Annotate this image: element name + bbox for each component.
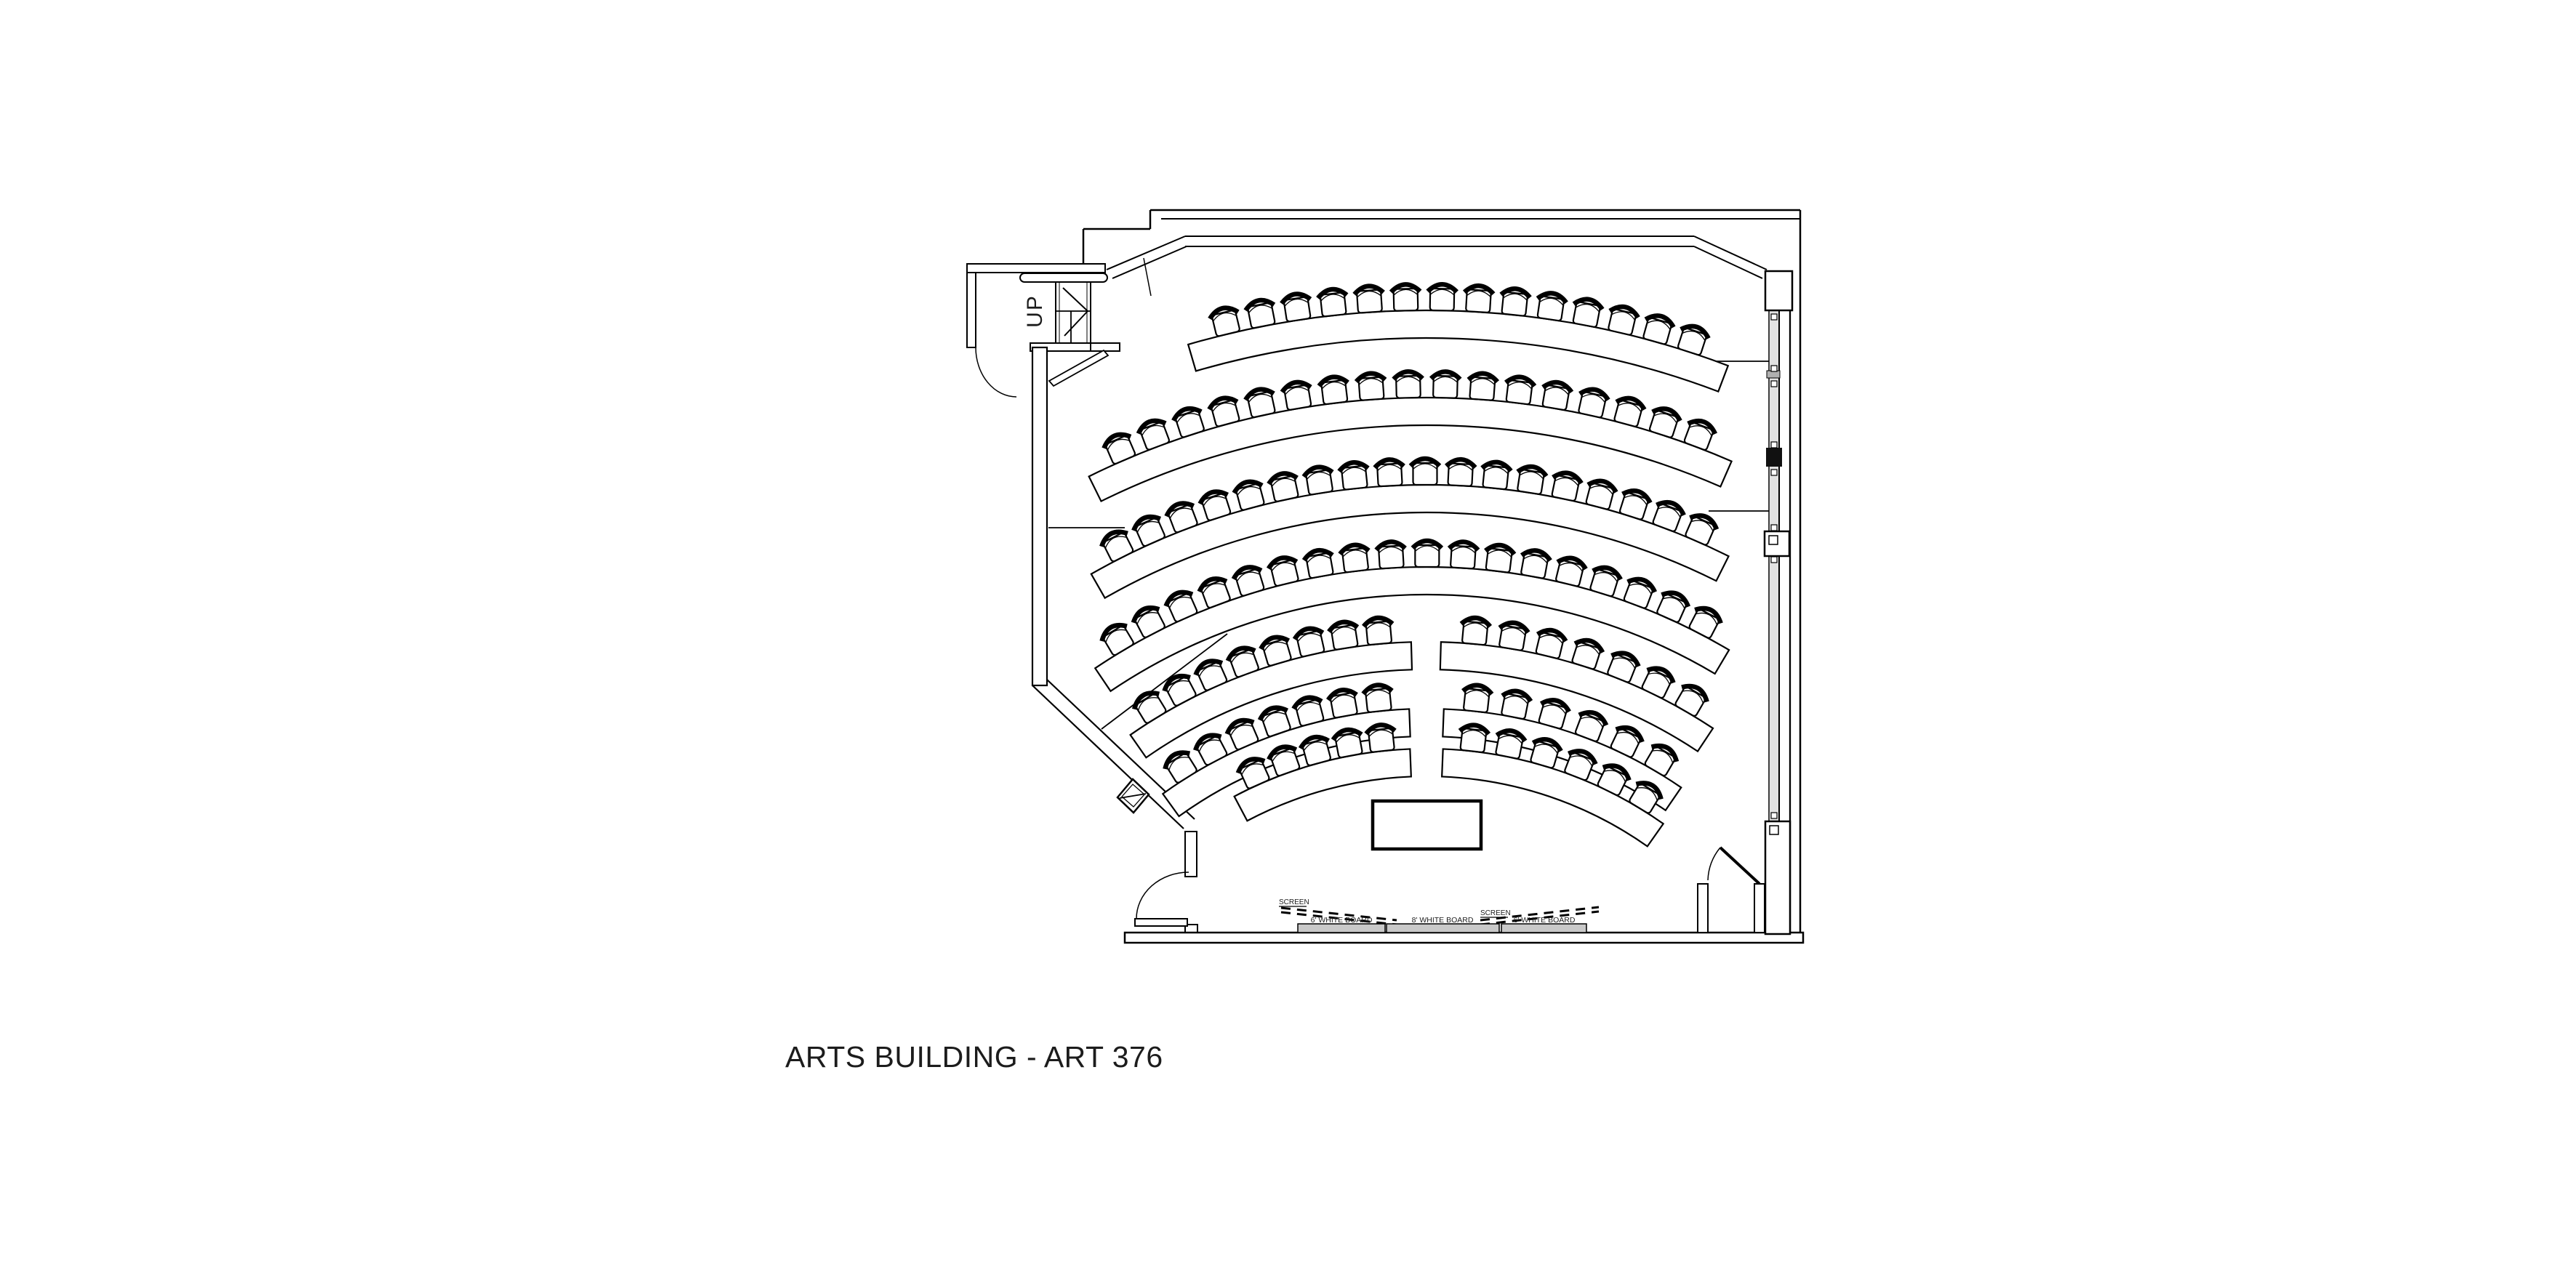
- whiteboard-left-label: 6' WHITE BOARD: [1311, 916, 1373, 925]
- door-br-jamb-left: [1698, 884, 1708, 933]
- seat: [1431, 371, 1461, 398]
- bottom-wall: [1125, 933, 1803, 943]
- seat-body: [1357, 290, 1382, 313]
- seat-body: [1464, 688, 1490, 712]
- seat: [1411, 459, 1440, 485]
- screen-left-label: SCREEN: [1279, 898, 1309, 906]
- window-mullion-tick: [1771, 442, 1777, 448]
- window-mullion-tick: [1771, 381, 1777, 387]
- vestibule-wall-left: [967, 264, 976, 347]
- screen-right-label: SCREEN: [1480, 909, 1511, 917]
- seat: [1413, 541, 1442, 567]
- seat: [1393, 371, 1423, 398]
- seat-body: [1517, 470, 1544, 495]
- seat-body: [1379, 545, 1404, 568]
- seat-body: [1377, 463, 1403, 486]
- seat-body: [1366, 621, 1392, 645]
- whiteboard-right: [1501, 924, 1586, 933]
- seat-body: [1537, 296, 1564, 321]
- seat-body: [1466, 289, 1491, 313]
- window-mullion-tick: [1771, 813, 1777, 818]
- seat-body: [1320, 292, 1347, 316]
- seat-body: [1365, 688, 1392, 712]
- seat-body: [1306, 470, 1333, 495]
- seat-body: [1469, 377, 1495, 401]
- seat-body: [1331, 624, 1358, 650]
- sidelight-frame: [1185, 832, 1197, 877]
- seat-body: [1460, 728, 1486, 752]
- whiteboard-right-label: 6' WHITE BOARD: [1514, 916, 1576, 925]
- seat-body: [1342, 548, 1368, 573]
- whiteboard-mid: [1387, 924, 1499, 933]
- seat-body: [1501, 292, 1528, 316]
- plan-title: ARTS BUILDING - ART 376: [785, 1040, 1163, 1074]
- window-mullion-tick: [1771, 366, 1777, 371]
- stair-door-leaf: [1020, 273, 1107, 282]
- seat-body: [1341, 466, 1368, 490]
- seat-body: [1482, 465, 1509, 489]
- seat-body: [1450, 546, 1476, 569]
- seat-body: [1485, 548, 1512, 573]
- seat-body: [1506, 380, 1532, 405]
- vestibule-wall-top: [967, 264, 1105, 273]
- window-pier-bottom-square: [1770, 826, 1778, 834]
- whiteboard-left: [1298, 924, 1385, 933]
- window-block-black: [1766, 448, 1782, 467]
- window-pier-mid-square: [1769, 536, 1778, 544]
- seat-body: [1462, 621, 1488, 645]
- paper-background: [0, 0, 2576, 1288]
- podium: [1373, 801, 1481, 849]
- window-pier-bottom: [1765, 821, 1790, 934]
- door-bl-leaf: [1135, 919, 1187, 926]
- floor-plan-canvas: ARTS BUILDING - ART 376UPSCREENSCREEN6' …: [0, 0, 2576, 1288]
- stair-up-label: UP: [1023, 294, 1047, 328]
- door-br-jamb-right: [1754, 884, 1765, 933]
- seat: [1427, 284, 1457, 311]
- vestibule-wall-stub: [1091, 343, 1120, 351]
- seat-body: [1368, 728, 1395, 752]
- seat-body: [1284, 297, 1311, 322]
- window-pier-top: [1765, 271, 1792, 310]
- whiteboard-mid-label: 8' WHITE BOARD: [1412, 916, 1474, 925]
- floor-plan-page: ARTS BUILDING - ART 376UPSCREENSCREEN6' …: [0, 0, 2576, 1288]
- window-mullion-tick: [1771, 314, 1777, 320]
- seat-body: [1321, 380, 1347, 405]
- seat: [1391, 284, 1421, 311]
- room-wall-left: [1032, 347, 1047, 685]
- window-mullion-tick: [1771, 525, 1777, 531]
- seat-body: [1359, 377, 1384, 401]
- window-mullion-tick: [1771, 557, 1777, 563]
- window-mullion-tick: [1771, 470, 1777, 475]
